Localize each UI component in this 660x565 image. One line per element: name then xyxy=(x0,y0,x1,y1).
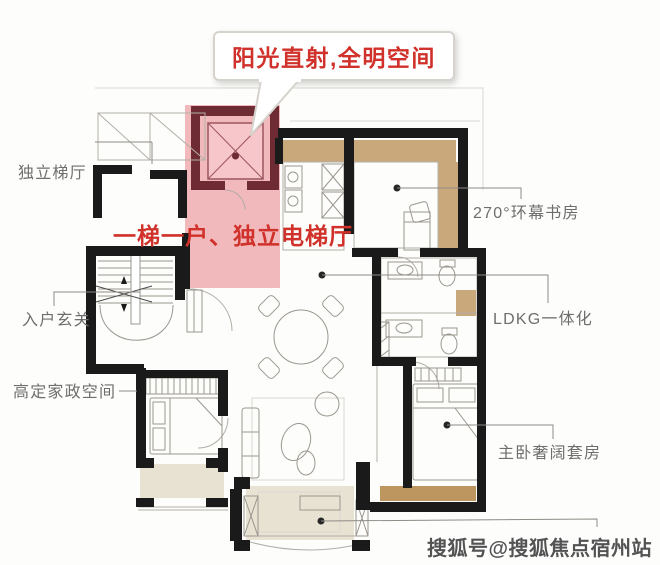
floorplan-image: 独立梯厅 入户玄关 高定家政空间 270°环幕书房 LDKG一体化 主卧奢阔套房… xyxy=(0,0,660,565)
label-elevator-hall: 独立梯厅 xyxy=(18,164,87,182)
label-ldkg: LDKG一体化 xyxy=(493,310,593,328)
elevator-note-text: 一梯一户、独立电梯厅 xyxy=(113,223,353,249)
callout-tail xyxy=(235,79,315,139)
stairwell xyxy=(96,252,173,340)
label-master-suite: 主卧奢阔套房 xyxy=(498,444,601,462)
label-study: 270°环幕书房 xyxy=(473,204,580,222)
leader-lines xyxy=(54,142,597,527)
label-entry-foyer: 入户玄关 xyxy=(22,311,91,329)
sunlight-callout: 阳光直射,全明空间 xyxy=(213,31,455,81)
floor-plan: 独立梯厅 入户玄关 高定家政空间 270°环幕书房 LDKG一体化 主卧奢阔套房… xyxy=(0,0,660,565)
watermark: 搜狐号@搜狐焦点宿州站 xyxy=(427,532,652,561)
label-housekeeping: 高定家政空间 xyxy=(13,383,116,401)
sunlight-callout-text: 阳光直射,全明空间 xyxy=(232,39,436,73)
